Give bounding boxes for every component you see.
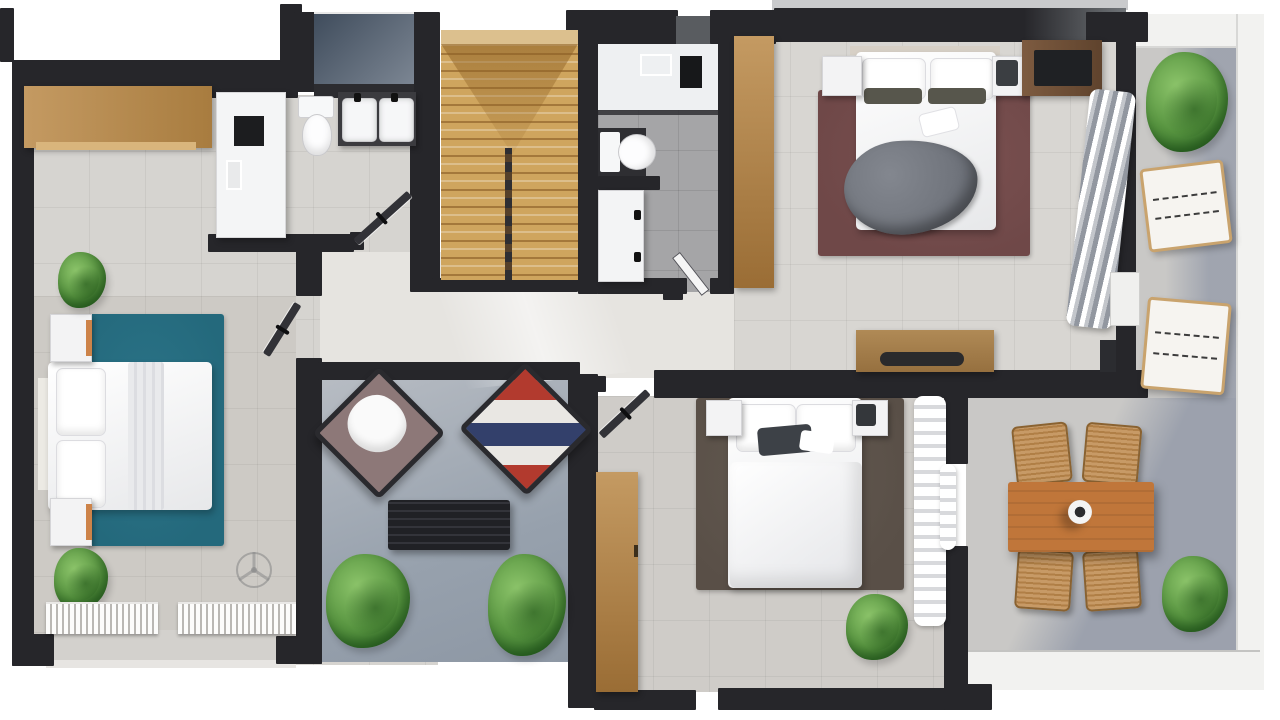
chimney-block-b [566, 10, 678, 44]
center-wardrobe-handle [634, 545, 638, 557]
wall-stub-bedroom-top [296, 234, 322, 296]
wall-cbed-right-lower [944, 546, 968, 692]
terrace-stool-1 [1139, 159, 1233, 253]
wall-bath-bottom-right [710, 278, 734, 294]
center-lamp-right [856, 404, 876, 426]
utility-faucet-right [391, 93, 398, 102]
wall-door3-post [592, 376, 606, 392]
wall-post-top-left [0, 8, 14, 62]
utility-wardrobe-front-edge [36, 142, 196, 150]
louvered-window-left [46, 602, 158, 634]
parapet-top [1134, 14, 1238, 48]
shower-mat-dark [680, 56, 702, 88]
master-end-table [1100, 340, 1116, 372]
left-nightstand-top-accent [86, 320, 92, 356]
dining-chair-top-right [1081, 422, 1142, 487]
bath-partition [598, 176, 660, 190]
left-bed-pillow-top [56, 368, 106, 436]
stairs-header-strip [441, 30, 578, 44]
cabinet-dark-panel [234, 116, 264, 146]
wall-top-master [774, 8, 1026, 42]
master-accent-pillow-right [928, 88, 986, 104]
stairs-center-stringer [505, 148, 512, 280]
bath-faucet-a [634, 210, 641, 220]
wall-cbed-bottom-left [594, 690, 696, 710]
master-tv [1034, 50, 1092, 86]
center-nightstand-left [706, 400, 742, 436]
bath-vanity [598, 190, 644, 282]
wall-master-right-lower [1116, 322, 1136, 376]
master-oak-wardrobe [734, 36, 774, 288]
wall-bath-left [578, 40, 598, 294]
toilet-utility-bowl [302, 114, 332, 156]
left-nightstand-bottom-accent [86, 504, 92, 540]
parapet-bottom [958, 650, 1260, 690]
shower-mat-white [640, 54, 672, 76]
cabinet-handle [226, 160, 242, 190]
wall-notch-recess [676, 16, 712, 44]
wall-terrace-cap [1086, 12, 1148, 42]
dining-chair-bottom-left [1014, 548, 1074, 612]
master-nightstand-left [822, 56, 862, 96]
utility-basin-right [379, 98, 414, 142]
wall-bedroom-living-divider [296, 358, 322, 664]
window-sill-strip [46, 630, 296, 662]
patio-coffee-table [388, 500, 510, 550]
wall-bath-right [718, 38, 734, 290]
wall-corner-bottom-left [12, 634, 54, 666]
dining-table-vase [1068, 500, 1092, 524]
skylight-box [314, 12, 414, 88]
ceiling-fan-icon [230, 546, 278, 594]
dining-doorway-curtain [940, 464, 956, 550]
toilet-bath-bowl [618, 134, 656, 170]
utility-basin-left [342, 98, 377, 142]
terrace-stool-2 [1140, 297, 1232, 396]
center-oak-wardrobe [596, 472, 638, 692]
master-lamp-right [996, 60, 1018, 86]
wall-corner-dining [944, 684, 992, 710]
wall-divider-foot [276, 636, 322, 664]
stair-bottom-edge [432, 278, 578, 292]
wall-cbed-right-upper [944, 396, 968, 464]
wall-stairwell-left [410, 12, 440, 292]
parapet-right [1236, 14, 1264, 690]
wall-left-outer [12, 60, 34, 666]
dining-chair-bottom-right [1082, 548, 1142, 612]
utility-faucet-left [354, 93, 361, 102]
shower-glass-line [598, 110, 718, 115]
wall-cbed-bottom-right [718, 688, 952, 710]
ledge-below-louvers [46, 660, 296, 668]
master-accent-pillow-left [864, 88, 922, 104]
left-bed-folded-blanket [128, 362, 164, 510]
bath-faucet-b [634, 252, 641, 262]
wall-long-master-bottom [654, 370, 1148, 398]
toilet-bath-tank [600, 132, 620, 172]
utility-oak-wardrobe [24, 86, 212, 148]
dining-chair-top-left [1011, 421, 1073, 487]
master-soundbar [880, 352, 964, 366]
floor-plan-scene [0, 0, 1280, 720]
wall-bath-door-post [663, 278, 683, 300]
master-sliding-door [1110, 272, 1140, 326]
center-bed-duvet [730, 462, 862, 588]
louvered-window-right [178, 602, 296, 634]
